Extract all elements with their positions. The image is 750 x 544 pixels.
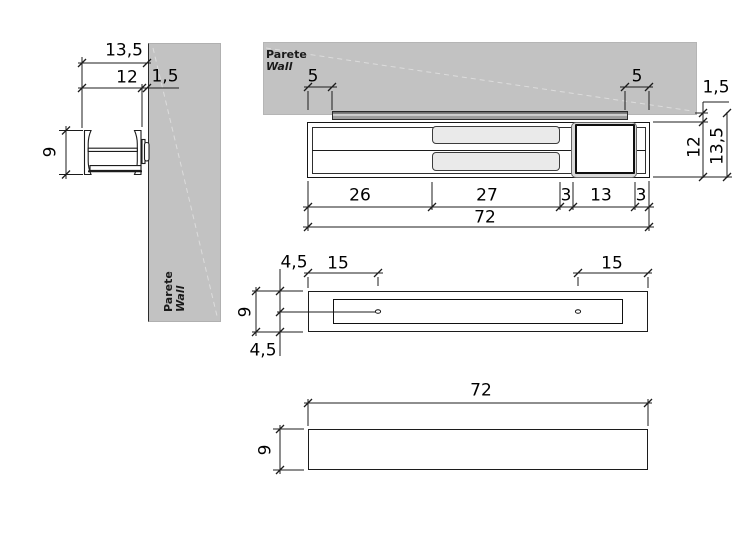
dim-front-length: 72 (470, 383, 492, 400)
dim-front-height: 9 (258, 445, 275, 456)
front-view-rect (308, 429, 648, 470)
wall-label-english: Wall (266, 61, 307, 73)
dim-top-segment-center: 27 (476, 188, 498, 205)
profile-cross-section (85, 131, 150, 175)
dim-top-box-width: 13 (590, 188, 612, 205)
wall-label-side: Parete Wall (163, 271, 187, 312)
dim-plan-hole-offset-left: 15 (327, 256, 349, 273)
dim-top-rail-inset-left: 5 (308, 69, 319, 86)
mounting-rail (332, 111, 628, 121)
dim-top-gap-right: 3 (636, 188, 647, 205)
dim-plan-offset-bottom: 4,5 (249, 343, 276, 360)
wall-label-english: Wall (175, 271, 187, 312)
dim-top-rail-depth: 1,5 (702, 80, 729, 97)
dim-top-rail-inset-right: 5 (632, 69, 643, 86)
dim-side-rail-depth: 1,5 (151, 69, 178, 86)
wall-label-top: Parete Wall (266, 49, 307, 73)
profile-left-flange (85, 131, 92, 175)
dim-top-gap-left: 3 (561, 188, 572, 205)
profile-web (88, 148, 137, 151)
dim-side-body-depth: 12 (116, 70, 138, 87)
dim-plan-offset-top: 4,5 (280, 255, 307, 272)
profile-right-flange (135, 131, 142, 175)
technical-drawing-canvas: Parete Wall Parete Wall 13,5 12 1,5 9 5 … (0, 0, 750, 544)
dim-top-segment-left: 26 (349, 188, 371, 205)
driver-panel-bottom (432, 152, 560, 171)
dim-top-total-length: 72 (474, 210, 496, 227)
junction-box (575, 124, 635, 174)
plan-view-inner (333, 299, 623, 324)
dim-plan-hole-offset-right: 15 (601, 256, 623, 273)
profile-wall-bracket (142, 140, 145, 164)
dim-side-total-depth: 13,5 (105, 43, 143, 60)
driver-panel-top (432, 126, 560, 145)
profile-bottom-plate (90, 166, 141, 171)
dim-plan-height: 9 (238, 307, 255, 318)
dim-top-total-depth: 13,5 (710, 127, 727, 165)
dim-top-body-depth: 12 (687, 136, 704, 158)
dim-side-height: 9 (43, 147, 60, 158)
